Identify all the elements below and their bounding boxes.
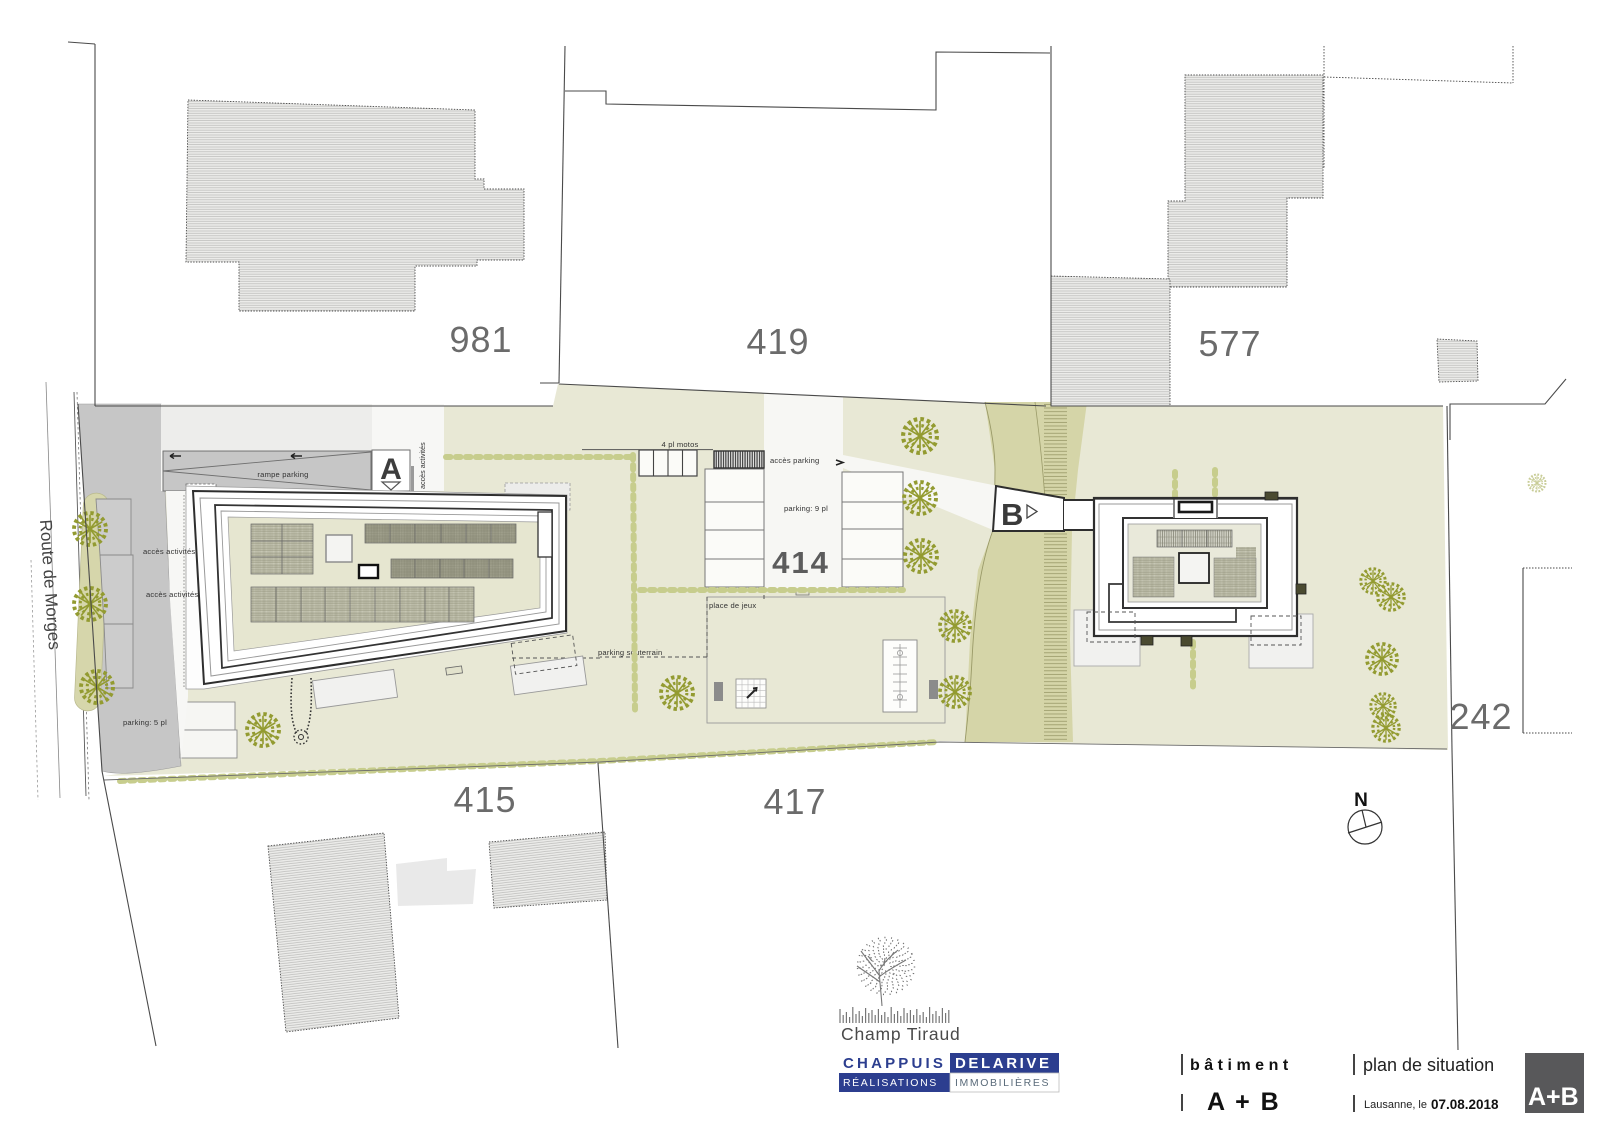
svg-text:Champ Tiraud: Champ Tiraud xyxy=(841,1024,961,1044)
svg-text:accès activités: accès activités xyxy=(418,442,427,489)
svg-text:Lausanne, le: Lausanne, le xyxy=(1364,1099,1427,1111)
svg-text:A: A xyxy=(380,453,402,486)
svg-text:accès activités: accès activités xyxy=(143,547,195,556)
svg-text:A + B: A + B xyxy=(1207,1088,1281,1116)
svg-text:rampe parking: rampe parking xyxy=(257,470,308,479)
svg-text:4 pl motos: 4 pl motos xyxy=(661,440,698,449)
svg-text:414: 414 xyxy=(772,545,830,580)
svg-text:417: 417 xyxy=(763,781,826,822)
svg-text:415: 415 xyxy=(453,779,516,820)
svg-text:plan de situation: plan de situation xyxy=(1363,1055,1494,1075)
svg-text:A+B: A+B xyxy=(1528,1083,1579,1111)
svg-text:place de jeux: place de jeux xyxy=(709,601,756,610)
svg-text:B: B xyxy=(1001,497,1023,532)
svg-text:RÉALISATIONS: RÉALISATIONS xyxy=(843,1076,938,1089)
svg-text:parking: 9 pl: parking: 9 pl xyxy=(784,504,828,513)
svg-text:IMMOBILIÈRES: IMMOBILIÈRES xyxy=(955,1076,1050,1089)
svg-text:parking: 5 pl: parking: 5 pl xyxy=(123,718,167,727)
svg-text:07.08.2018: 07.08.2018 xyxy=(1431,1097,1499,1112)
svg-text:accès activités: accès activités xyxy=(146,590,198,599)
svg-text:242: 242 xyxy=(1449,696,1512,737)
svg-text:bâtiment: bâtiment xyxy=(1190,1057,1293,1074)
svg-text:parking souterrain: parking souterrain xyxy=(598,648,662,657)
svg-text:419: 419 xyxy=(746,321,809,362)
svg-text:DELARIVE: DELARIVE xyxy=(955,1055,1052,1072)
svg-text:accès parking: accès parking xyxy=(770,456,819,465)
svg-text:981: 981 xyxy=(449,319,512,360)
svg-text:N: N xyxy=(1354,790,1368,811)
svg-text:577: 577 xyxy=(1198,323,1261,364)
svg-text:CHAPPUIS: CHAPPUIS xyxy=(843,1055,946,1072)
